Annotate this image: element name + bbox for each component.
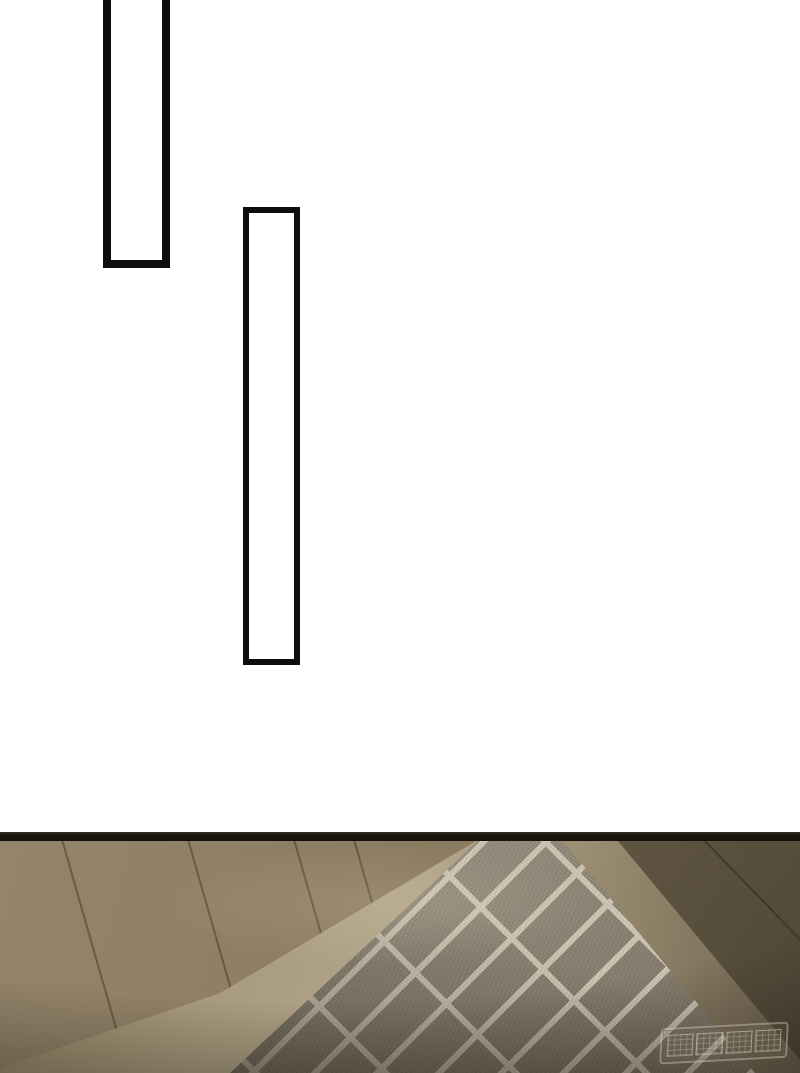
wall-seam [702, 838, 800, 947]
panel-frame-tall-center [243, 207, 300, 665]
watermark-glyph-icon [725, 1031, 752, 1054]
panel-frame-tall-left [103, 0, 170, 268]
watermark-glyph-icon [666, 1034, 693, 1057]
watermark-text: 嘟嘟动漫 [663, 1030, 664, 1031]
watermark-logo: 嘟嘟动漫 [659, 1022, 789, 1065]
watermark-glyph-icon [754, 1029, 781, 1052]
watermark-glyph-icon [696, 1032, 723, 1055]
webtoon-page: 嘟嘟动漫 [0, 0, 800, 1073]
background-photo-panel: 嘟嘟动漫 [0, 832, 800, 1073]
panel-top-border [0, 832, 800, 841]
